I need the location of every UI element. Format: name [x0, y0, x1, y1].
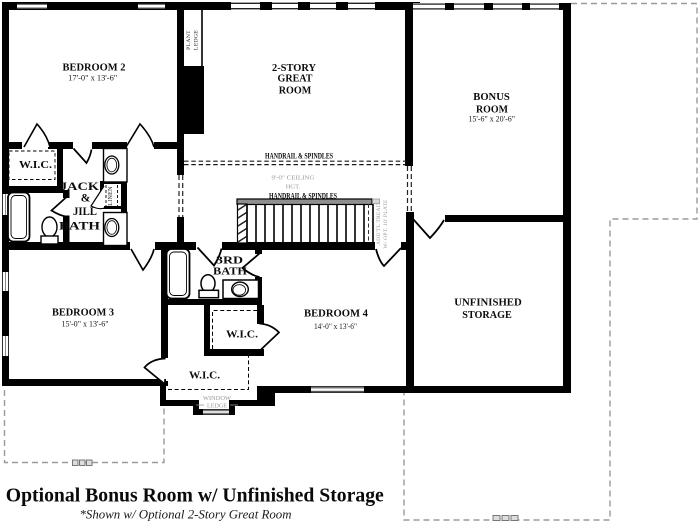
- svg-text:W.I.C.: W.I.C.: [189, 370, 220, 382]
- svg-text:WINDOW: WINDOW: [203, 395, 232, 402]
- svg-text:W/ OPT. 10' PLATE: W/ OPT. 10' PLATE: [383, 199, 389, 249]
- svg-text:HANDRAIL & SPINDLES: HANDRAIL & SPINDLES: [265, 152, 333, 161]
- svg-text:BATH: BATH: [59, 221, 100, 233]
- svg-text:BEDROOM 4: BEDROOM 4: [304, 308, 368, 320]
- svg-text:W.I.C.: W.I.C.: [19, 159, 52, 171]
- svg-text:W.I.C.: W.I.C.: [226, 329, 258, 341]
- svg-text:14'-0" x 13'-6": 14'-0" x 13'-6": [314, 322, 357, 331]
- svg-text:STORAGE: STORAGE: [462, 309, 512, 321]
- svg-text:JACK: JACK: [60, 181, 99, 193]
- svg-text:GREAT: GREAT: [278, 72, 314, 84]
- svg-text:*Shown w/ Optional 2-Story Gre: *Shown w/ Optional 2-Story Great Room: [80, 506, 292, 521]
- svg-text:LEDGE: LEDGE: [194, 30, 200, 50]
- svg-text:17'-0" x 13'-6": 17'-0" x 13'-6": [68, 73, 117, 82]
- svg-text:ROOM: ROOM: [476, 103, 509, 115]
- svg-text:15'-0" x 13'-6": 15'-0" x 13'-6": [62, 320, 109, 329]
- svg-text:15'-6" x 20'-6": 15'-6" x 20'-6": [468, 115, 515, 124]
- svg-text:BONUS: BONUS: [473, 91, 510, 103]
- svg-text:BEDROOM 3: BEDROOM 3: [52, 307, 114, 319]
- svg-text:HANDRAIL & SPINDLES: HANDRAIL & SPINDLES: [269, 192, 337, 201]
- svg-text:9'-0" CEILING: 9'-0" CEILING: [272, 175, 315, 182]
- svg-text:LEDGE: LEDGE: [207, 403, 227, 410]
- svg-text:3RD: 3RD: [216, 256, 244, 267]
- svg-text:BEDROOM 2: BEDROOM 2: [63, 62, 126, 74]
- svg-text:&: &: [81, 193, 91, 205]
- svg-text:PLANT: PLANT: [186, 30, 192, 50]
- svg-text:ADD'TL TREAD: ADD'TL TREAD: [376, 203, 382, 245]
- svg-text:BATH: BATH: [213, 267, 247, 278]
- svg-text:JILL: JILL: [73, 206, 97, 218]
- svg-text:ROOM: ROOM: [279, 84, 312, 96]
- svg-text:HGT.: HGT.: [286, 184, 301, 191]
- svg-text:LINEN: LINEN: [108, 186, 114, 206]
- svg-text:Optional Bonus Room w/ Unfinis: Optional Bonus Room w/ Unfinished Storag…: [6, 485, 384, 507]
- svg-text:UNFINISHED: UNFINISHED: [454, 296, 522, 308]
